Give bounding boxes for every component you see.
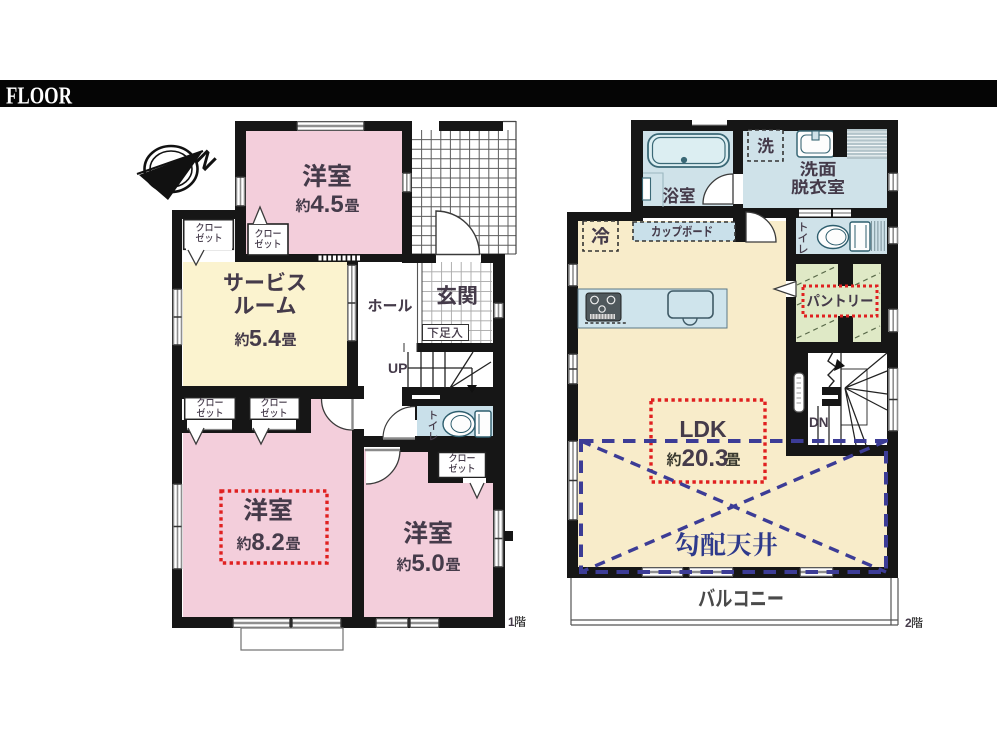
svg-text:5.4: 5.4	[249, 325, 281, 351]
svg-text:UP: UP	[388, 360, 407, 376]
svg-text:5.0: 5.0	[411, 550, 444, 577]
svg-text:20.3: 20.3	[682, 445, 729, 472]
svg-text:LDK: LDK	[679, 416, 727, 442]
svg-text:DN: DN	[809, 415, 829, 430]
svg-text:2: 2	[905, 616, 912, 630]
svg-text:1: 1	[508, 615, 515, 629]
svg-text:8.2: 8.2	[251, 529, 284, 556]
svg-text:4.5: 4.5	[310, 191, 343, 218]
svg-text:FLOOR: FLOOR	[6, 84, 73, 110]
